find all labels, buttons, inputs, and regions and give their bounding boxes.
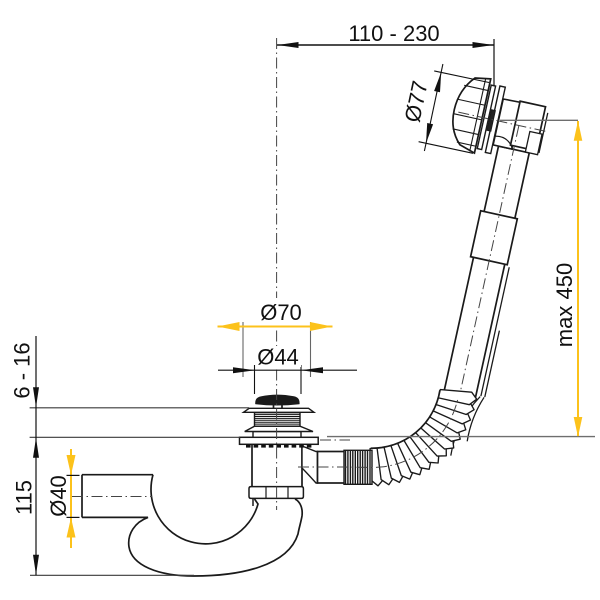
svg-text:Ø70: Ø70 bbox=[260, 300, 302, 325]
svg-text:115: 115 bbox=[12, 480, 37, 515]
svg-text:110 - 230: 110 - 230 bbox=[348, 21, 439, 46]
svg-text:max 450: max 450 bbox=[552, 263, 577, 347]
svg-text:6 - 16: 6 - 16 bbox=[10, 342, 35, 398]
svg-text:Ø40: Ø40 bbox=[46, 475, 71, 517]
svg-text:Ø44: Ø44 bbox=[257, 345, 299, 370]
